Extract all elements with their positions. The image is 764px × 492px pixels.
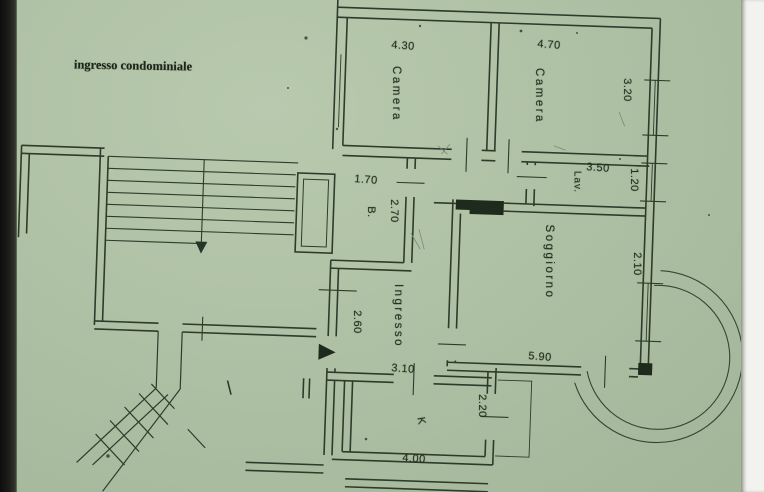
label-ingresso-depth: 2.60 xyxy=(351,310,363,333)
plan-paper: ingresso condominiale 4.30 Camera 4.70 C… xyxy=(0,0,764,492)
label-bath-width: 1.70 xyxy=(354,173,378,187)
scanned-floor-plan-photo: ingresso condominiale 4.30 Camera 4.70 C… xyxy=(0,0,764,492)
label-camera2-width: 4.70 xyxy=(537,38,561,52)
label-soggiorno-depth: 2.10 xyxy=(631,252,643,275)
label-ingresso-name: Ingresso xyxy=(392,284,404,348)
stairs-upper xyxy=(15,145,322,344)
terrace-outline xyxy=(495,380,532,457)
dimension-ticks xyxy=(315,69,671,423)
dust-speckles xyxy=(106,25,710,458)
label-soggiorno-name: Soggiorno xyxy=(543,225,555,300)
label-condo-entrance-note: ingresso condominiale xyxy=(74,57,192,74)
label-bath-depth: 2.70 xyxy=(388,199,400,222)
apartment-walls xyxy=(224,0,661,492)
label-lav-name: Lav. xyxy=(572,171,583,193)
pencil-scribbles xyxy=(410,105,625,256)
label-kitchen-width: 4.00 xyxy=(402,452,426,466)
label-ingresso-width: 3.10 xyxy=(391,362,415,376)
lift-shaft xyxy=(295,173,335,253)
balcony-arc xyxy=(573,268,746,446)
floor-plan-drawing xyxy=(0,0,764,492)
scan-edge-left xyxy=(0,0,17,492)
stair-direction-arrow xyxy=(195,241,207,253)
label-lav-width: 3.50 xyxy=(586,161,610,175)
window-lines xyxy=(331,54,655,341)
label-camera1-width: 4.30 xyxy=(391,39,415,53)
label-kitchen-depth: 2.20 xyxy=(476,394,488,417)
label-bath-name: B. xyxy=(365,206,377,217)
label-soggiorno-width: 5.90 xyxy=(528,350,552,364)
label-camera1-name: Camera xyxy=(390,66,402,122)
stairs-lower xyxy=(76,328,210,492)
label-lav-depth: 1.20 xyxy=(628,168,640,191)
label-camera2-name: Camera xyxy=(533,68,545,124)
scan-edge-right xyxy=(741,0,764,492)
label-camera2-depth: 3.20 xyxy=(621,78,633,101)
entrance-arrow xyxy=(318,344,336,361)
